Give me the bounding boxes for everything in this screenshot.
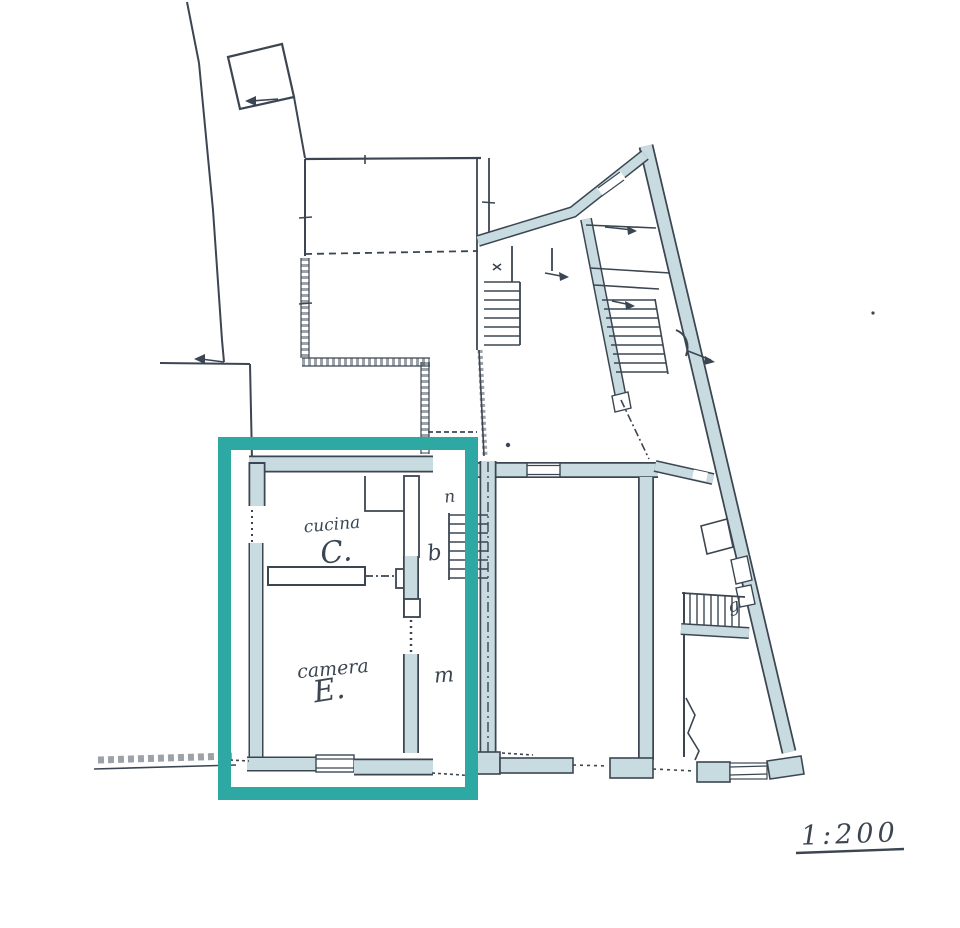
mark-b: b [426,540,443,567]
ink-speck [871,311,874,314]
room-letter-camera: E. [310,671,348,711]
boundary-lines [160,2,305,460]
ink-dot [506,443,510,447]
mark-n: n [443,487,456,508]
mark-m: m [433,662,455,687]
wing [478,146,789,752]
zigzag-line [686,698,699,760]
highlighted-rooms: cucina C. camera E. n b m [247,462,488,776]
scale-label: 1:200 [800,817,899,851]
floor-plan-drawing: g [0,0,960,928]
fixture-square [701,519,733,554]
hatched-wall [301,258,430,454]
scale-annotation: 1:200 [796,817,904,853]
room-label-cucina: cucina [303,513,361,538]
room-letter-cucina: C. [318,533,353,572]
upper-room [299,155,495,454]
parcel-square [228,44,294,109]
staircase-upper [484,282,520,345]
corridor-staircase [479,246,569,456]
